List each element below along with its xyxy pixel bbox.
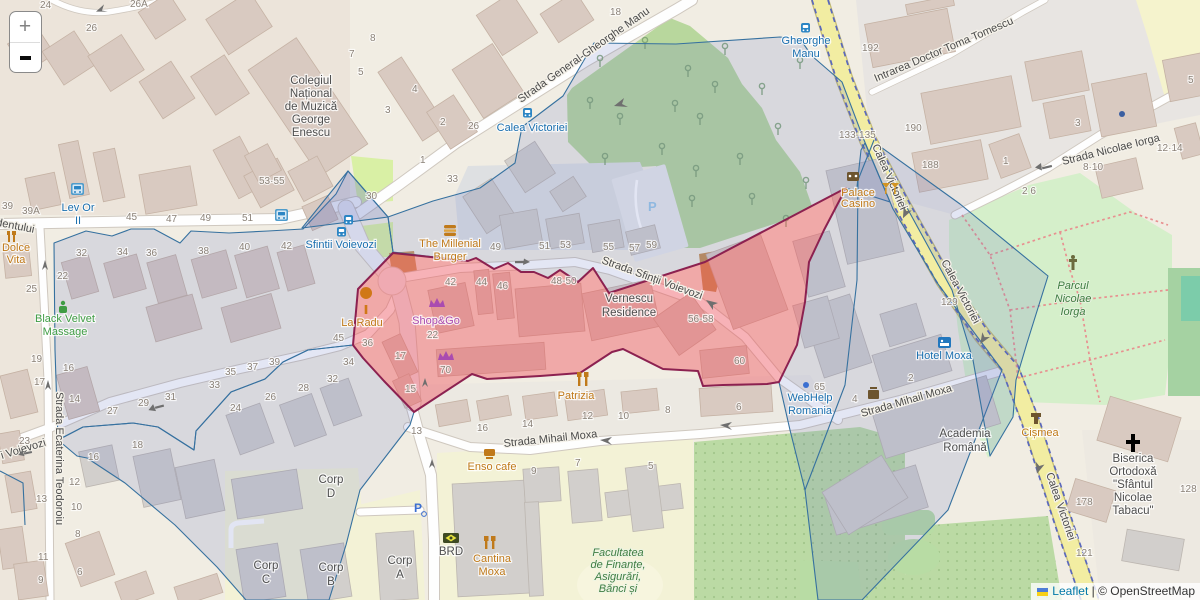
svg-text:65: 65 xyxy=(814,382,826,393)
svg-text:7: 7 xyxy=(575,458,581,469)
svg-text:17: 17 xyxy=(395,351,407,362)
svg-text:17: 17 xyxy=(34,377,46,388)
svg-text:Manu: Manu xyxy=(792,48,820,60)
svg-text:1: 1 xyxy=(420,155,426,166)
svg-text:3: 3 xyxy=(1075,118,1081,129)
svg-text:18: 18 xyxy=(132,440,144,451)
svg-text:5: 5 xyxy=(358,67,364,78)
svg-text:24: 24 xyxy=(230,403,242,414)
svg-text:Tabacu": Tabacu" xyxy=(1112,505,1153,517)
svg-text:12: 12 xyxy=(69,477,81,488)
svg-text:45: 45 xyxy=(333,333,345,344)
svg-text:8: 8 xyxy=(370,33,376,44)
svg-text:13: 13 xyxy=(36,494,48,505)
svg-text:25: 25 xyxy=(26,284,38,295)
svg-text:33: 33 xyxy=(209,380,221,391)
svg-text:178: 178 xyxy=(1076,497,1093,508)
svg-text:18: 18 xyxy=(610,7,622,18)
svg-text:La Radu: La Radu xyxy=(341,317,383,329)
svg-text:15: 15 xyxy=(405,384,417,395)
svg-text:8: 8 xyxy=(75,529,81,540)
svg-text:45: 45 xyxy=(126,212,138,223)
svg-text:Lev Or: Lev Or xyxy=(61,202,94,214)
svg-text:19: 19 xyxy=(31,354,43,365)
svg-text:Colegiul: Colegiul xyxy=(290,75,332,87)
svg-text:C: C xyxy=(262,574,270,586)
svg-text:13: 13 xyxy=(411,426,423,437)
svg-text:192: 192 xyxy=(862,43,879,54)
svg-text:Română: Română xyxy=(943,442,987,454)
svg-text:49: 49 xyxy=(200,213,212,224)
svg-text:4: 4 xyxy=(852,394,858,405)
svg-text:Shop&Go: Shop&Go xyxy=(412,315,460,327)
svg-text:60: 60 xyxy=(734,356,746,367)
svg-text:Cantina: Cantina xyxy=(473,553,512,565)
svg-text:Academia: Academia xyxy=(939,428,991,440)
svg-text:Residence: Residence xyxy=(602,307,656,319)
svg-text:53: 53 xyxy=(560,240,572,251)
svg-text:P: P xyxy=(648,199,657,214)
svg-text:42: 42 xyxy=(445,277,457,288)
svg-text:190: 190 xyxy=(905,123,922,134)
svg-text:16: 16 xyxy=(477,423,489,434)
svg-text:27: 27 xyxy=(107,406,119,417)
svg-text:9: 9 xyxy=(38,575,44,586)
svg-text:42: 42 xyxy=(281,241,293,252)
svg-text:Strada Ecaterina Teodoroiu: Strada Ecaterina Teodoroiu xyxy=(53,392,65,525)
svg-text:5: 5 xyxy=(1188,75,1194,86)
svg-text:14: 14 xyxy=(69,394,81,405)
svg-text:14: 14 xyxy=(522,419,534,430)
svg-text:The Millenial: The Millenial xyxy=(419,238,481,250)
svg-text:38: 38 xyxy=(198,246,210,257)
svg-text:55: 55 xyxy=(603,242,615,253)
svg-text:35: 35 xyxy=(225,367,237,378)
svg-text:2: 2 xyxy=(440,117,446,128)
svg-text:188: 188 xyxy=(922,160,939,171)
svg-text:2: 2 xyxy=(908,373,914,384)
svg-text:Parcul: Parcul xyxy=(1057,280,1089,292)
svg-text:29: 29 xyxy=(138,398,150,409)
svg-text:Vernescu: Vernescu xyxy=(605,293,653,305)
svg-text:70: 70 xyxy=(440,365,452,376)
svg-text:129: 129 xyxy=(941,297,958,308)
svg-text:39: 39 xyxy=(2,201,14,212)
svg-text:B: B xyxy=(327,576,335,588)
svg-text:51: 51 xyxy=(242,213,254,224)
svg-text:56-58: 56-58 xyxy=(688,314,714,325)
svg-text:11: 11 xyxy=(38,552,49,563)
svg-text:Black Velvet: Black Velvet xyxy=(35,313,95,325)
svg-text:1: 1 xyxy=(1003,156,1009,167)
svg-text:Asigurări,: Asigurări, xyxy=(594,571,641,583)
svg-text:22: 22 xyxy=(57,271,69,282)
svg-text:2 6: 2 6 xyxy=(1022,186,1036,197)
svg-text:de Muzică: de Muzică xyxy=(285,101,338,113)
svg-text:8: 8 xyxy=(665,405,671,416)
svg-text:47: 47 xyxy=(166,214,178,225)
svg-text:44: 44 xyxy=(476,277,488,288)
svg-text:de Finanțe,: de Finanțe, xyxy=(590,559,645,571)
svg-text:22: 22 xyxy=(427,330,439,341)
svg-text:39: 39 xyxy=(269,357,281,368)
svg-text:Gheorghe: Gheorghe xyxy=(782,35,831,47)
svg-text:26A: 26A xyxy=(130,0,148,10)
svg-text:Corp: Corp xyxy=(254,560,279,572)
svg-text:26: 26 xyxy=(468,121,480,132)
svg-text:Vita: Vita xyxy=(7,254,27,266)
svg-text:6: 6 xyxy=(77,567,83,578)
svg-text:Nicolae: Nicolae xyxy=(1114,492,1152,504)
svg-text:Moxa: Moxa xyxy=(479,566,507,578)
svg-text:Burger: Burger xyxy=(433,251,466,263)
svg-text:128: 128 xyxy=(1180,484,1197,495)
svg-text:Național: Național xyxy=(290,88,332,100)
svg-text:"Sfântul: "Sfântul xyxy=(1113,479,1153,491)
svg-text:32: 32 xyxy=(327,374,339,385)
svg-text:Casino: Casino xyxy=(841,198,875,210)
svg-text:12: 12 xyxy=(582,411,594,422)
svg-text:8·10: 8·10 xyxy=(1083,162,1103,173)
svg-text:Bănci și: Bănci și xyxy=(599,583,638,595)
svg-text:Facultatea: Facultatea xyxy=(592,547,643,559)
svg-text:9: 9 xyxy=(531,466,537,477)
svg-text:23: 23 xyxy=(19,436,31,447)
svg-text:59: 59 xyxy=(646,240,658,251)
svg-text:5: 5 xyxy=(648,461,654,472)
svg-text:Biserica: Biserica xyxy=(1113,453,1155,465)
svg-text:36: 36 xyxy=(362,338,374,349)
svg-text:Sfintii Voievozi: Sfintii Voievozi xyxy=(306,239,377,251)
svg-text:Iorga: Iorga xyxy=(1060,306,1085,318)
svg-text:26: 26 xyxy=(86,23,98,34)
svg-text:16: 16 xyxy=(63,363,75,374)
svg-text:D: D xyxy=(327,488,335,500)
svg-text:Enso cafe: Enso cafe xyxy=(468,461,517,473)
svg-text:36: 36 xyxy=(146,248,158,259)
svg-text:Corp: Corp xyxy=(319,474,344,486)
svg-text:133-135: 133-135 xyxy=(839,130,876,141)
svg-text:37: 37 xyxy=(247,362,259,373)
svg-text:24: 24 xyxy=(40,0,52,11)
svg-text:32: 32 xyxy=(76,248,88,259)
svg-text:51: 51 xyxy=(539,241,551,252)
svg-text:Hotel Moxa: Hotel Moxa xyxy=(916,350,973,362)
svg-text:Dolce: Dolce xyxy=(2,242,30,254)
svg-text:Romania: Romania xyxy=(788,405,833,417)
svg-text:Calea Victoriei: Calea Victoriei xyxy=(497,122,568,134)
svg-text:48-50: 48-50 xyxy=(551,276,577,287)
svg-text:10: 10 xyxy=(618,411,630,422)
svg-text:3: 3 xyxy=(385,105,391,116)
svg-text:George: George xyxy=(292,114,330,126)
svg-text:BRD: BRD xyxy=(439,546,463,558)
svg-text:53·55: 53·55 xyxy=(259,176,285,187)
svg-text:46: 46 xyxy=(497,281,509,292)
svg-text:WebHelp: WebHelp xyxy=(787,392,832,404)
svg-text:31: 31 xyxy=(165,392,177,403)
svg-text:Enescu: Enescu xyxy=(292,127,330,139)
svg-text:A: A xyxy=(396,569,404,581)
svg-text:12·14: 12·14 xyxy=(1157,143,1183,154)
svg-text:7: 7 xyxy=(349,49,355,60)
svg-text:Massage: Massage xyxy=(43,326,88,338)
svg-text:Corp: Corp xyxy=(388,555,413,567)
svg-text:Ortodoxă: Ortodoxă xyxy=(1109,466,1157,478)
svg-text:Patrizia: Patrizia xyxy=(558,390,596,402)
svg-text:P: P xyxy=(414,501,422,515)
svg-text:33: 33 xyxy=(447,174,459,185)
svg-text:39A: 39A xyxy=(22,206,40,217)
svg-text:6: 6 xyxy=(736,402,742,413)
svg-text:121: 121 xyxy=(1076,548,1093,559)
svg-text:Cișmea: Cișmea xyxy=(1021,427,1059,439)
svg-text:Nicolae: Nicolae xyxy=(1055,293,1092,305)
svg-text:II: II xyxy=(75,215,81,227)
svg-text:40: 40 xyxy=(239,242,251,253)
svg-text:57: 57 xyxy=(629,243,641,254)
svg-text:34: 34 xyxy=(117,247,129,258)
svg-text:4: 4 xyxy=(412,84,418,95)
svg-text:16: 16 xyxy=(88,452,100,463)
svg-text:10: 10 xyxy=(71,502,83,513)
svg-text:28: 28 xyxy=(298,383,310,394)
svg-text:49: 49 xyxy=(490,242,502,253)
svg-text:30: 30 xyxy=(366,191,378,202)
svg-text:Corp: Corp xyxy=(319,562,344,574)
svg-text:26: 26 xyxy=(265,392,277,403)
svg-text:34: 34 xyxy=(343,357,355,368)
